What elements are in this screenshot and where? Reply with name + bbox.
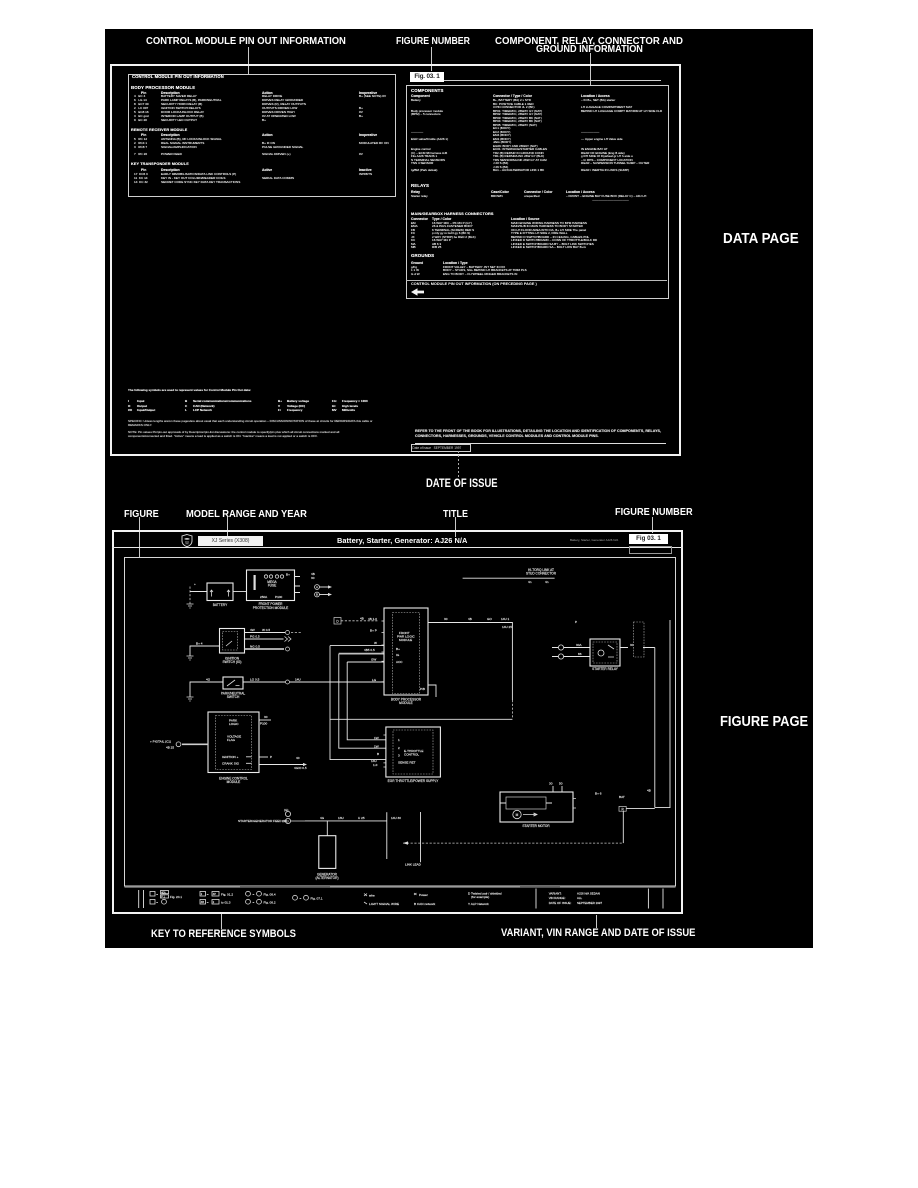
svg-text:=: = bbox=[156, 900, 158, 904]
svg-text:LOGIC: LOGIC bbox=[229, 722, 239, 726]
svg-text:ACC: ACC bbox=[396, 660, 403, 664]
svg-text:SWITCH (IG): SWITCH (IG) bbox=[223, 660, 242, 664]
svg-text:B+ 4: B+ 4 bbox=[196, 642, 203, 646]
svg-text:4G/O 0.5: 4G/O 0.5 bbox=[294, 766, 307, 770]
svg-text:FUSE: FUSE bbox=[268, 584, 277, 588]
svg-text:MODULE: MODULE bbox=[399, 701, 413, 705]
svg-text:2: 2 bbox=[398, 746, 400, 750]
svg-text:+ PIGTAIL (C1): + PIGTAIL (C1) bbox=[150, 740, 171, 744]
svg-text:SENSE RET: SENSE RET bbox=[398, 761, 416, 765]
svg-text:30: 30 bbox=[444, 617, 448, 621]
svg-text:IGNITION +: IGNITION + bbox=[222, 755, 239, 759]
svg-text:4n: 4n bbox=[545, 580, 549, 584]
svg-text:BAT: BAT bbox=[619, 795, 625, 799]
svg-text:30: 30 bbox=[630, 643, 634, 647]
svg-text:M: M bbox=[516, 813, 519, 817]
svg-text:Power: Power bbox=[419, 893, 428, 897]
svg-text:NG 0.5: NG 0.5 bbox=[250, 645, 260, 649]
svg-text:AJ26 N/A SEDAN: AJ26 N/A SEDAN bbox=[577, 891, 600, 895]
svg-text:50: 50 bbox=[559, 782, 563, 786]
svg-text:4B5 0.5: 4B5 0.5 bbox=[364, 648, 375, 652]
svg-text:Y ALP Network: Y ALP Network bbox=[468, 902, 489, 906]
svg-text:14U 1: 14U 1 bbox=[501, 617, 510, 621]
svg-text:(for example): (for example) bbox=[471, 895, 489, 899]
svg-text:SWITCH: SWITCH bbox=[227, 695, 240, 699]
svg-text:30A: 30A bbox=[576, 643, 582, 647]
svg-text:P100: P100 bbox=[275, 595, 283, 599]
svg-text:40: 40 bbox=[296, 756, 300, 760]
svg-text:EGR THROTTLE/POWER SUPPLY: EGR THROTTLE/POWER SUPPLY bbox=[388, 779, 440, 783]
svg-text:B+: B+ bbox=[396, 647, 400, 651]
svg-text:Fig. 20.1: Fig. 20.1 bbox=[170, 895, 182, 899]
svg-text:wire: wire bbox=[369, 893, 375, 897]
svg-text:CRANK SIG: CRANK SIG bbox=[222, 762, 240, 766]
svg-text:13U: 13U bbox=[338, 816, 344, 820]
svg-text:86: 86 bbox=[578, 652, 582, 656]
svg-text:FLAG: FLAG bbox=[227, 738, 236, 742]
svg-text:LINK LEAD: LINK LEAD bbox=[405, 863, 422, 867]
svg-text:14U 30: 14U 30 bbox=[391, 816, 401, 820]
svg-text:A: A bbox=[316, 585, 318, 589]
svg-text:P100: P100 bbox=[260, 722, 268, 726]
svg-text:=: = bbox=[207, 892, 209, 896]
svg-text:14U 25: 14U 25 bbox=[502, 625, 512, 629]
svg-text:D: D bbox=[336, 619, 339, 623]
svg-text:B+: B+ bbox=[286, 572, 290, 576]
svg-text:4B: 4B bbox=[360, 616, 364, 620]
svg-text:30: 30 bbox=[264, 715, 268, 719]
svg-text:VARIANT:: VARIANT: bbox=[549, 891, 562, 895]
svg-text:=: = bbox=[300, 896, 302, 900]
svg-text:B+ P: B+ P bbox=[370, 629, 377, 633]
svg-text:4n: 4n bbox=[528, 580, 532, 584]
svg-text:B+ 6: B+ 6 bbox=[595, 792, 602, 796]
svg-text:4W: 4W bbox=[250, 628, 255, 632]
svg-text:SEPTEMBER 1997: SEPTEMBER 1997 bbox=[577, 901, 602, 905]
svg-text:GO: GO bbox=[487, 617, 492, 621]
svg-text:Fig. 08.2: Fig. 08.2 bbox=[264, 900, 276, 904]
svg-text:Fig. 07.1: Fig. 07.1 bbox=[311, 896, 323, 900]
svg-text:MODULE: MODULE bbox=[227, 780, 241, 784]
svg-text:STUD CONNECTOR: STUD CONNECTOR bbox=[526, 571, 557, 575]
svg-text:CONTROL: CONTROL bbox=[404, 753, 419, 757]
svg-text:4G: 4G bbox=[320, 816, 325, 820]
svg-text:4B: 4B bbox=[647, 789, 651, 793]
svg-text:2: 2 bbox=[213, 900, 215, 904]
svg-text:MODULE: MODULE bbox=[399, 638, 412, 642]
svg-text:BATTERY: BATTERY bbox=[213, 603, 228, 607]
svg-text:B: B bbox=[316, 593, 318, 597]
svg-text:14U: 14U bbox=[295, 678, 301, 682]
svg-text:1W: 1W bbox=[374, 744, 379, 748]
svg-text:STARTER/GENERATOR FEED (G1): STARTER/GENERATOR FEED (G1) bbox=[238, 819, 288, 823]
svg-text:DATE OF ISSUE:: DATE OF ISSUE: bbox=[549, 901, 572, 905]
svg-text:1.0: 1.0 bbox=[373, 763, 378, 767]
svg-text:VIN RANGE:: VIN RANGE: bbox=[549, 896, 566, 900]
svg-text:250A: 250A bbox=[260, 595, 268, 599]
svg-text:U 25: U 25 bbox=[358, 816, 365, 820]
svg-text:PROTECTION MODULE: PROTECTION MODULE bbox=[253, 606, 288, 610]
svg-text:P: P bbox=[575, 620, 577, 624]
svg-text:LIGHT SIGNAL WIRE: LIGHT SIGNAL WIRE bbox=[369, 902, 399, 906]
svg-text:3: 3 bbox=[398, 753, 400, 757]
svg-text:(G): (G) bbox=[284, 808, 288, 812]
svg-text:4P: 4P bbox=[213, 892, 216, 896]
svg-text:4B 25: 4B 25 bbox=[166, 746, 174, 750]
svg-text:STARTER RELAY: STARTER RELAY bbox=[592, 667, 619, 671]
svg-text:B: B bbox=[377, 752, 379, 756]
svg-text:P/B: P/B bbox=[420, 687, 425, 691]
svg-text:=: = bbox=[253, 892, 255, 896]
svg-text:30: 30 bbox=[311, 576, 315, 580]
svg-text:W: W bbox=[374, 641, 377, 645]
svg-text:4B: 4B bbox=[201, 900, 204, 904]
svg-text:4B 1.0: 4B 1.0 bbox=[368, 617, 377, 621]
svg-text:1W: 1W bbox=[374, 736, 379, 740]
svg-text:P: P bbox=[270, 755, 272, 759]
svg-text:30: 30 bbox=[549, 782, 553, 786]
svg-text:LG: LG bbox=[372, 678, 377, 682]
svg-text:PG 0.5: PG 0.5 bbox=[250, 635, 260, 639]
svg-text:ALL: ALL bbox=[577, 896, 583, 900]
svg-text:(ALTERNATOR): (ALTERNATOR) bbox=[315, 876, 338, 880]
svg-text:4B: 4B bbox=[468, 617, 472, 621]
svg-text:=: = bbox=[207, 900, 209, 904]
svg-text:Fig. 01.2: Fig. 01.2 bbox=[221, 892, 233, 896]
svg-text:4G: 4G bbox=[206, 678, 211, 682]
svg-text:=: = bbox=[253, 900, 255, 904]
svg-text:STARTER MOTOR: STARTER MOTOR bbox=[522, 824, 550, 828]
svg-text:2: 2 bbox=[201, 892, 203, 896]
svg-text:B CAN network: B CAN network bbox=[414, 902, 436, 906]
svg-text:40A: 40A bbox=[161, 891, 166, 894]
svg-text:GW: GW bbox=[371, 657, 376, 661]
svg-text:1: 1 bbox=[398, 738, 400, 742]
svg-text:IG: IG bbox=[396, 653, 400, 657]
svg-text:Fig. 08.4: Fig. 08.4 bbox=[264, 892, 276, 896]
svg-text:to 01.3: to 01.3 bbox=[221, 900, 231, 904]
svg-text:R: R bbox=[621, 807, 624, 811]
svg-text:=: = bbox=[156, 892, 158, 896]
svg-text:+: + bbox=[194, 582, 196, 586]
svg-text:W 0.5: W 0.5 bbox=[262, 628, 270, 632]
svg-text:LG 0.5: LG 0.5 bbox=[250, 678, 260, 682]
